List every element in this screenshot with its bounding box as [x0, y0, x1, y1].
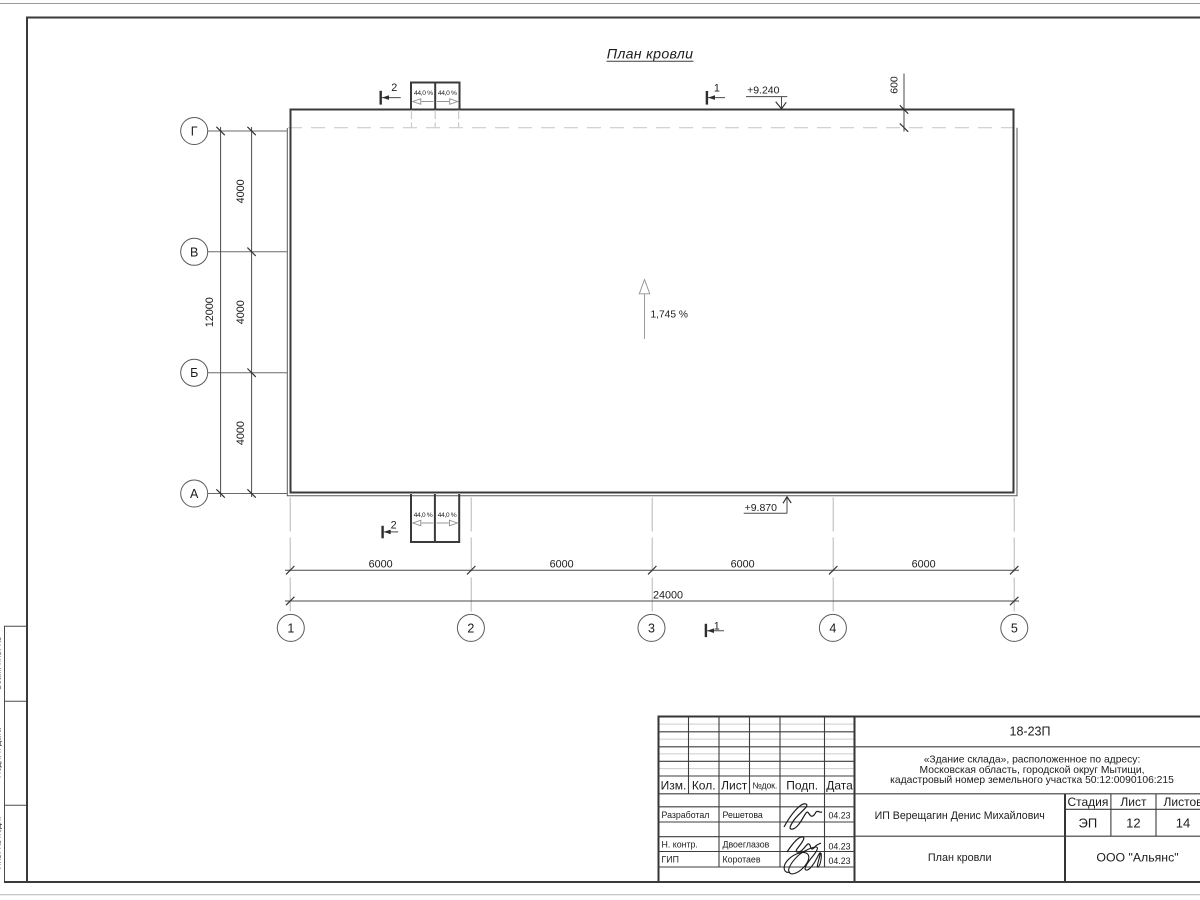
svg-text:4000: 4000: [235, 421, 247, 445]
svg-text:4000: 4000: [235, 300, 247, 324]
svg-text:Взам. инв. №: Взам. инв. №: [0, 637, 2, 690]
svg-text:2: 2: [391, 82, 397, 94]
svg-text:ЭП: ЭП: [1079, 816, 1098, 831]
svg-text:Кол.: Кол.: [692, 778, 716, 792]
svg-text:3: 3: [648, 621, 655, 635]
svg-text:В: В: [190, 245, 198, 259]
svg-text:Стадия: Стадия: [1067, 795, 1108, 809]
svg-text:6000: 6000: [369, 558, 393, 570]
svg-text:«Здание склада», расположенное: «Здание склада», расположенное по адресу…: [924, 754, 1141, 765]
svg-text:14: 14: [1176, 816, 1190, 831]
svg-text:5: 5: [1011, 621, 1018, 635]
svg-text:Коротаев: Коротаев: [723, 854, 761, 864]
svg-text:Решетова: Решетова: [723, 810, 763, 820]
svg-text:12000: 12000: [204, 297, 216, 327]
svg-text:План кровли: План кровли: [928, 852, 992, 864]
svg-text:Лист: Лист: [721, 778, 748, 792]
svg-text:4: 4: [829, 621, 836, 635]
svg-text:04.23: 04.23: [828, 841, 850, 851]
svg-text:1: 1: [714, 83, 720, 95]
svg-text:ГИП: ГИП: [662, 854, 679, 864]
svg-text:Б: Б: [190, 366, 198, 380]
svg-text:Разработал: Разработал: [662, 810, 710, 820]
svg-text:44,0 %: 44,0 %: [438, 90, 457, 97]
svg-text:+9.240: +9.240: [747, 85, 780, 97]
svg-text:6000: 6000: [731, 558, 755, 570]
svg-text:Н. контр.: Н. контр.: [662, 839, 698, 849]
svg-text:18-23П: 18-23П: [1010, 725, 1051, 739]
svg-text:Подп.: Подп.: [786, 778, 818, 792]
svg-text:12: 12: [1126, 816, 1140, 831]
svg-text:44,0 %: 44,0 %: [414, 512, 433, 519]
svg-text:2: 2: [391, 520, 397, 532]
svg-text:44,0 %: 44,0 %: [438, 512, 457, 519]
svg-text:Изм.: Изм.: [661, 778, 687, 792]
svg-text:Инв. № подл.: Инв. № подл.: [0, 817, 2, 870]
svg-text:Листов: Листов: [1164, 795, 1200, 809]
svg-text:Дата: Дата: [826, 778, 853, 792]
svg-text:6000: 6000: [912, 558, 936, 570]
svg-text:А: А: [190, 487, 199, 501]
svg-text:04.23: 04.23: [828, 856, 850, 866]
svg-text:1: 1: [714, 620, 720, 632]
svg-text:№док.: №док.: [752, 780, 777, 790]
svg-text:Московская область, городской: Московская область, городской округ Мыти…: [920, 764, 1145, 776]
svg-text:Подп. и дата: Подп. и дата: [0, 728, 2, 778]
svg-text:Лист: Лист: [1120, 795, 1147, 809]
svg-text:+9.870: +9.870: [745, 502, 778, 514]
svg-text:6000: 6000: [550, 558, 574, 570]
svg-text:600: 600: [889, 76, 901, 94]
svg-text:Двоеглазов: Двоеглазов: [723, 839, 770, 849]
svg-text:кадастровый номер земельного у: кадастровый номер земельного участка 50:…: [890, 775, 1174, 786]
svg-text:ИП Верещагин Денис Михайлович: ИП Верещагин Денис Михайлович: [875, 810, 1045, 822]
svg-text:04.23: 04.23: [828, 810, 850, 820]
svg-text:План кровли: План кровли: [607, 47, 694, 63]
svg-text:44,0 %: 44,0 %: [414, 90, 433, 97]
svg-text:Г: Г: [191, 125, 198, 139]
svg-text:ООО "Альянс": ООО "Альянс": [1096, 851, 1178, 865]
svg-text:1,745 %: 1,745 %: [651, 310, 688, 321]
svg-text:4000: 4000: [235, 179, 247, 203]
svg-text:2: 2: [467, 621, 474, 635]
svg-text:24000: 24000: [653, 590, 683, 602]
svg-text:1: 1: [287, 621, 294, 635]
